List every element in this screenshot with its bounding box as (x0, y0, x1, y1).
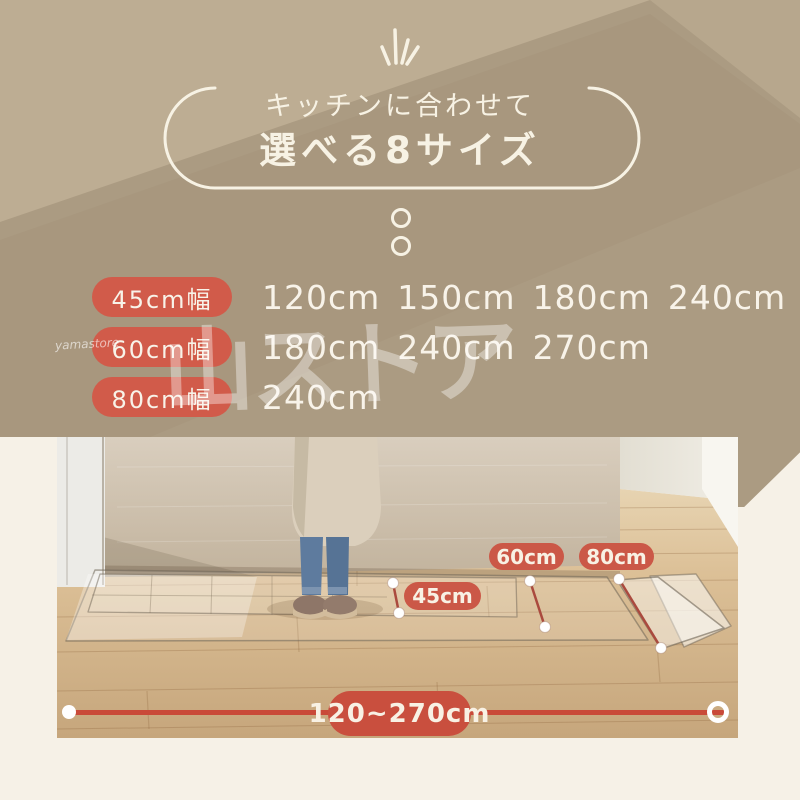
sparkle-rays-icon (365, 25, 425, 70)
product-infographic: キッチンに合わせて 選べる8サイズ 45cm幅 120cm 150cm 180c… (0, 0, 800, 800)
lengths-45: 120cm 150cm 180cm 240cm (262, 277, 786, 317)
deco-circle-2 (391, 236, 411, 256)
length-value: 120cm (262, 278, 380, 317)
length-value: 180cm (533, 278, 651, 317)
length-value: 240cm (397, 328, 515, 367)
line-endpoint-right (707, 701, 729, 723)
length-value: 240cm (262, 378, 380, 417)
label-80cm: 80cm (579, 543, 654, 570)
length-value: 240cm (668, 278, 786, 317)
size-row-45: 45cm幅 120cm 150cm 180cm 240cm (0, 277, 800, 317)
length-value: 180cm (262, 328, 380, 367)
label-45cm: 45cm (404, 582, 481, 610)
headline-main: 選べる8サイズ (0, 120, 800, 174)
size-row-80: 80cm幅 240cm (0, 377, 800, 417)
length-value: 150cm (397, 278, 515, 317)
white-cabinet (57, 437, 105, 587)
headline-sub: キッチンに合わせて (0, 84, 800, 123)
length-range-badge: 120~270cm (328, 691, 471, 736)
size-row-60: 60cm幅 180cm 240cm 270cm (0, 327, 800, 367)
deco-circle-1 (391, 208, 411, 228)
length-value: 270cm (533, 328, 651, 367)
width-badge-60: 60cm幅 (92, 327, 232, 367)
width-badge-80: 80cm幅 (92, 377, 232, 417)
line-endpoint-left (62, 705, 76, 719)
label-60cm: 60cm (489, 543, 564, 570)
tan-corner-triangle (738, 437, 800, 507)
width-badge-45: 45cm幅 (92, 277, 232, 317)
lengths-60: 180cm 240cm 270cm (262, 327, 651, 367)
lengths-80: 240cm (262, 377, 380, 417)
